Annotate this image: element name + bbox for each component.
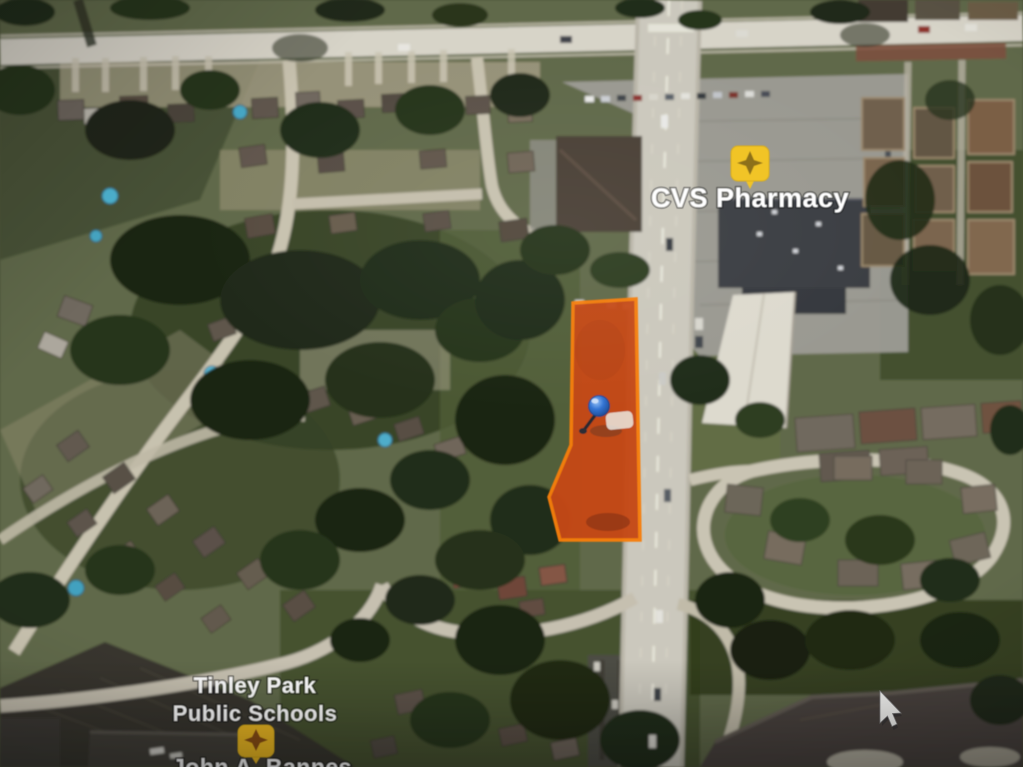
aerial-imagery [0,0,1023,767]
school-label-line2: Public Schools [173,701,338,726]
parcel-shade [586,513,630,531]
pushpin-icon[interactable] [589,396,610,417]
screen-photo: CVS Pharmacy Tinley Park Public Schools … [0,0,1023,767]
pin-highlight [592,399,599,404]
pin-callout-blob [605,411,634,431]
school-label-line1: Tinley Park [194,673,317,698]
cvs-pharmacy-label: CVS Pharmacy [651,183,849,213]
school-sub-label: John A. Bannes [172,754,352,767]
satellite-map[interactable]: CVS Pharmacy Tinley Park Public Schools … [0,0,1023,767]
parcel-shade-2 [575,320,625,380]
pin-foot [579,428,587,434]
